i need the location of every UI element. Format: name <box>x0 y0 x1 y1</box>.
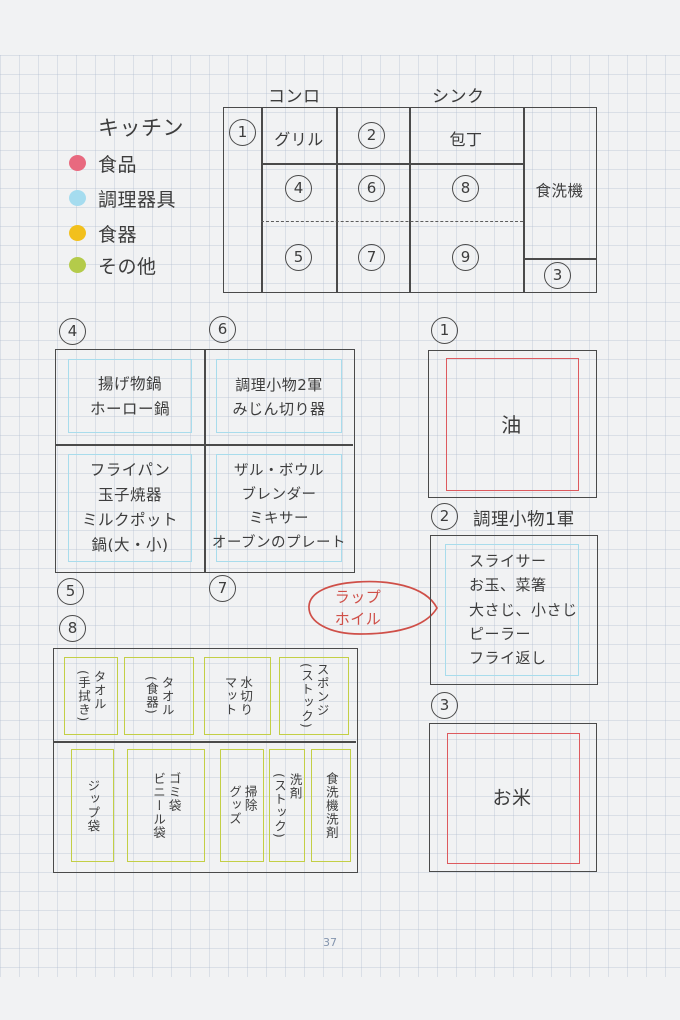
dishwasher-cell: 食洗機 <box>524 174 595 206</box>
towel-dish-label: タオル (食器) <box>143 676 174 717</box>
legend-item-other: その他 <box>69 253 157 277</box>
map-number-6: 6 <box>358 175 385 202</box>
storage-box-2: スライサー お玉、菜箸 大さじ、小さじ ピーラー フライ返し <box>430 535 598 685</box>
legend-item-label: 調理器具 <box>98 185 176 212</box>
map-number-5: 5 <box>285 244 312 271</box>
label-number-3: 3 <box>431 692 458 719</box>
legend-item-cookware: 調理器具 <box>69 186 176 210</box>
cookware-color-dot <box>69 190 86 206</box>
cleaning-goods-label: 掃除 グッズ <box>226 785 257 826</box>
zip-bag-label: ジップ袋 <box>85 779 101 833</box>
storage-box-4-6: 揚げ物鍋 ホーロー鍋 調理小物2軍 みじん切り器 フライパン 玉子焼器 ミルクポ… <box>55 349 355 573</box>
map-row-line <box>261 163 523 165</box>
page-number: 37 <box>0 936 660 949</box>
storage-box-1: 油 <box>428 350 597 498</box>
trash-plastic-bag-card: ゴミ袋 ビニール袋 <box>127 749 205 862</box>
other-color-dot <box>69 257 86 273</box>
legend-title: キッチン <box>98 112 184 142</box>
storage-box-vdivider <box>204 350 206 572</box>
box2-title: 調理小物1軍 <box>473 506 575 531</box>
label-number-4: 4 <box>59 318 86 345</box>
stove-label: コンロ <box>268 82 321 107</box>
legend-item-food: 食品 <box>69 151 137 175</box>
label-number-2: 2 <box>431 503 458 530</box>
box4-contents: 揚げ物鍋 ホーロー鍋 <box>60 354 200 440</box>
map-number-8: 8 <box>452 175 479 202</box>
label-number-5: 5 <box>57 578 84 605</box>
box1-contents: 油 <box>429 351 594 495</box>
food-color-dot <box>69 155 86 171</box>
detergent-stock-card: 洗剤 (ストック) <box>269 749 305 862</box>
legend-item-label: 食品 <box>98 150 137 177</box>
box7-contents: ザル・ボウル ブレンダー ミキサー オーブンのプレート <box>208 448 350 568</box>
sink-label: シンク <box>432 82 485 107</box>
kitchen-map-table: 1 グリル 2 包丁 4 6 8 5 7 9 食洗機 3 <box>223 107 597 293</box>
map-number-4: 4 <box>285 175 312 202</box>
map-divider-2 <box>336 108 338 292</box>
notebook-page: キッチン 食品 調理器具 食器 その他 コンロ シンク 1 グリル 2 包丁 4… <box>0 0 680 1020</box>
sponge-stock-label: スポンジ (ストック) <box>298 663 329 729</box>
legend-item-label: 食器 <box>98 220 137 247</box>
towel-dish-card: タオル (食器) <box>124 657 194 735</box>
dishwasher-detergent-card: 食洗機洗剤 <box>311 749 351 862</box>
towel-hand-card: タオル (手拭き) <box>64 657 118 735</box>
towel-hand-label: タオル (手拭き) <box>75 670 106 722</box>
box5-contents: フライパン 玉子焼器 ミルクポット 鍋(大・小) <box>60 448 200 568</box>
drain-mat-card: 水切り マット <box>204 657 271 735</box>
drain-mat-label: 水切り マット <box>222 676 253 717</box>
tableware-color-dot <box>69 225 86 241</box>
storage-box-8: タオル (手拭き) タオル (食器) 水切り マット スポンジ (ストック) ジ… <box>53 648 358 873</box>
knife-cell: 包丁 <box>411 122 521 154</box>
dishwasher-detergent-label: 食洗機洗剤 <box>323 772 339 840</box>
trash-plastic-bag-label: ゴミ袋 ビニール袋 <box>150 772 181 840</box>
dishwasher-divider <box>523 258 596 260</box>
map-number-9: 9 <box>452 244 479 271</box>
label-number-1: 1 <box>431 317 458 344</box>
wrap-foil-bubble-text: ラップ ホイル <box>316 585 400 631</box>
legend-item-label: その他 <box>98 252 157 279</box>
label-number-6: 6 <box>209 316 236 343</box>
box8-row-divider <box>54 741 356 743</box>
box3-contents: お米 <box>430 724 594 869</box>
storage-box-3: お米 <box>429 723 597 872</box>
legend-item-tableware: 食器 <box>69 221 137 245</box>
storage-box-hdivider <box>56 444 353 446</box>
label-number-8: 8 <box>59 615 86 642</box>
cleaning-goods-card: 掃除 グッズ <box>220 749 264 862</box>
label-number-7: 7 <box>209 575 236 602</box>
map-number-3: 3 <box>544 262 571 289</box>
map-number-1: 1 <box>229 119 256 146</box>
sponge-stock-card: スポンジ (ストック) <box>279 657 349 735</box>
box2-contents: スライサー お玉、菜箸 大さじ、小さじ ピーラー フライ返し <box>469 549 578 670</box>
map-number-7: 7 <box>358 244 385 271</box>
map-dashed-line <box>261 221 523 222</box>
zip-bag-card: ジップ袋 <box>71 749 114 862</box>
map-number-2: 2 <box>358 122 385 149</box>
box6-contents: 調理小物2軍 みじん切り器 <box>208 354 350 440</box>
detergent-stock-label: 洗剤 (ストック) <box>271 773 302 839</box>
grill-cell: グリル <box>263 122 335 154</box>
